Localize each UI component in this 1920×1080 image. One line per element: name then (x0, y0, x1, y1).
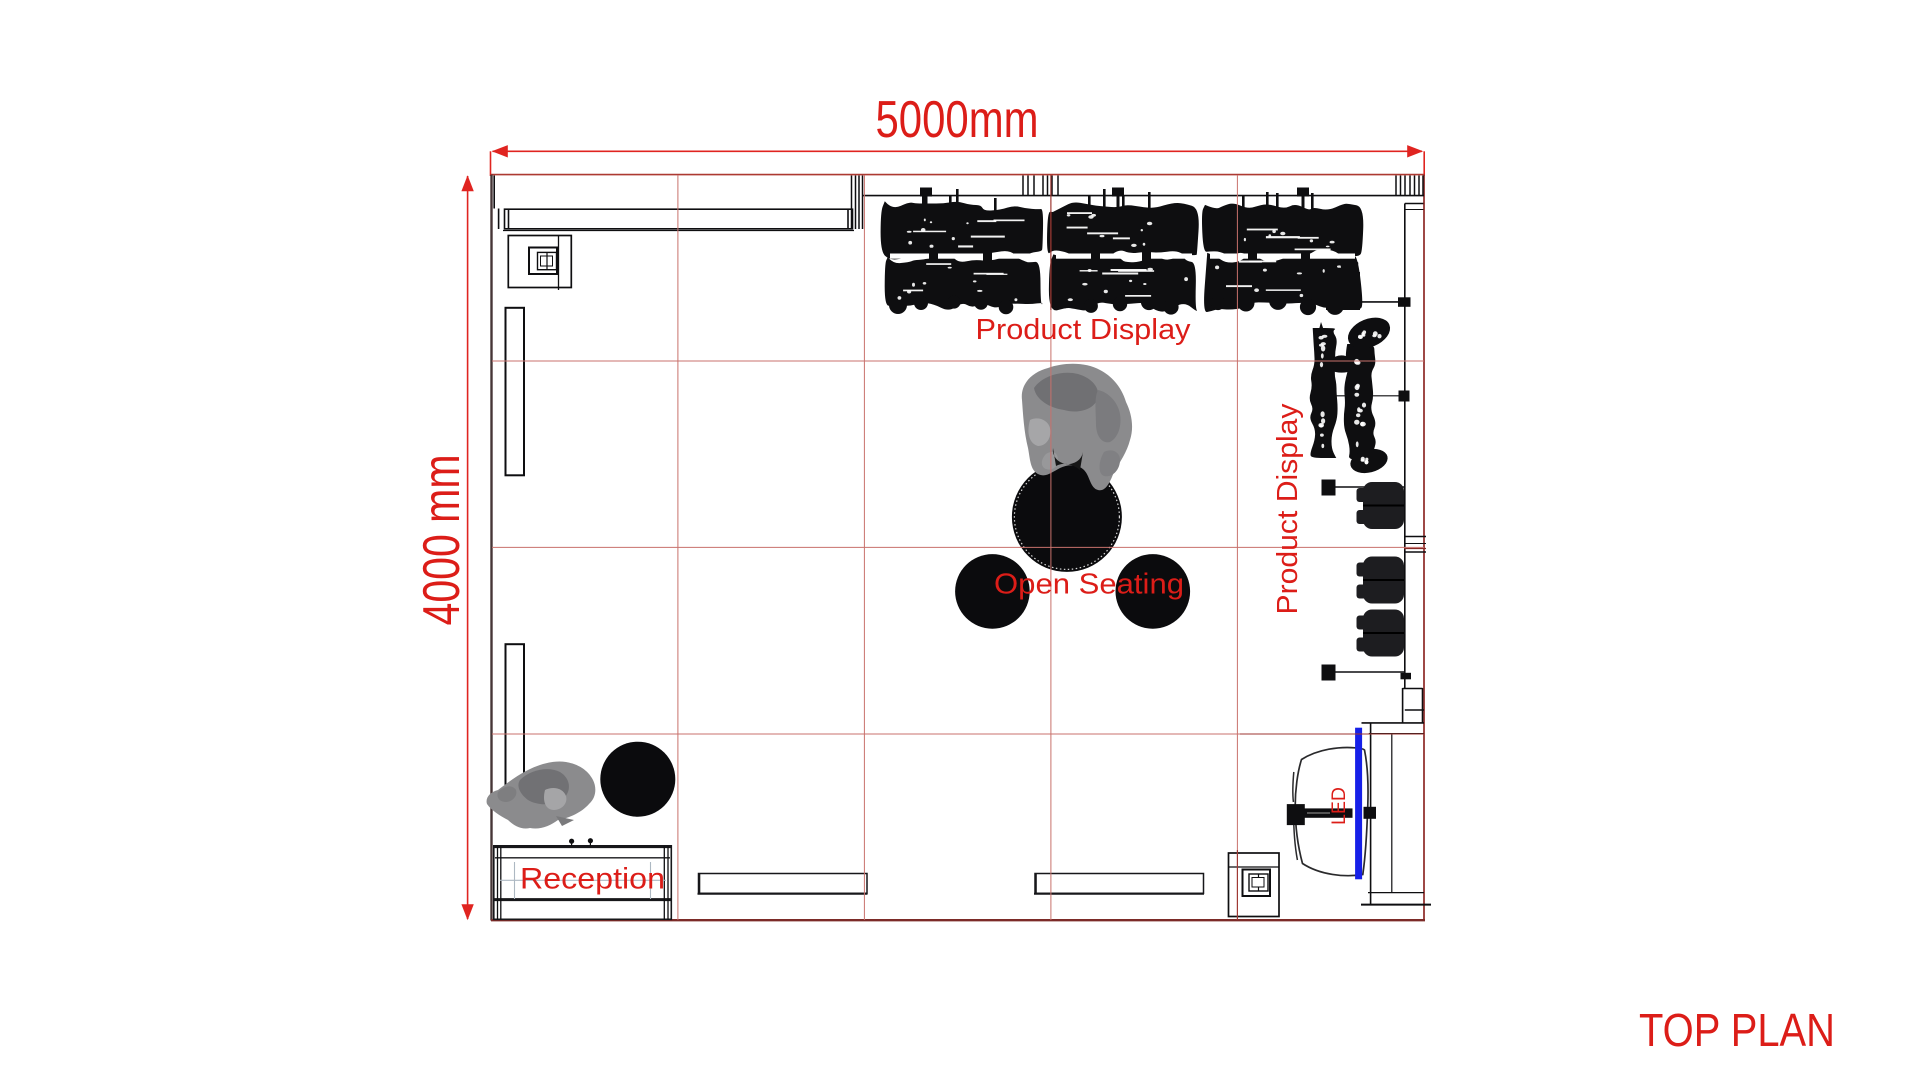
svg-text:Open Seating: Open Seating (994, 569, 1184, 601)
svg-text:Reception: Reception (520, 863, 665, 896)
svg-text:Product Display: Product Display (976, 314, 1192, 346)
svg-text:4000 mm: 4000 mm (413, 455, 471, 626)
svg-text:LED: LED (1329, 787, 1350, 825)
svg-text:Product Display: Product Display (1272, 403, 1304, 615)
svg-text:5000mm: 5000mm (876, 91, 1039, 149)
svg-text:TOP PLAN: TOP PLAN (1639, 1004, 1835, 1056)
